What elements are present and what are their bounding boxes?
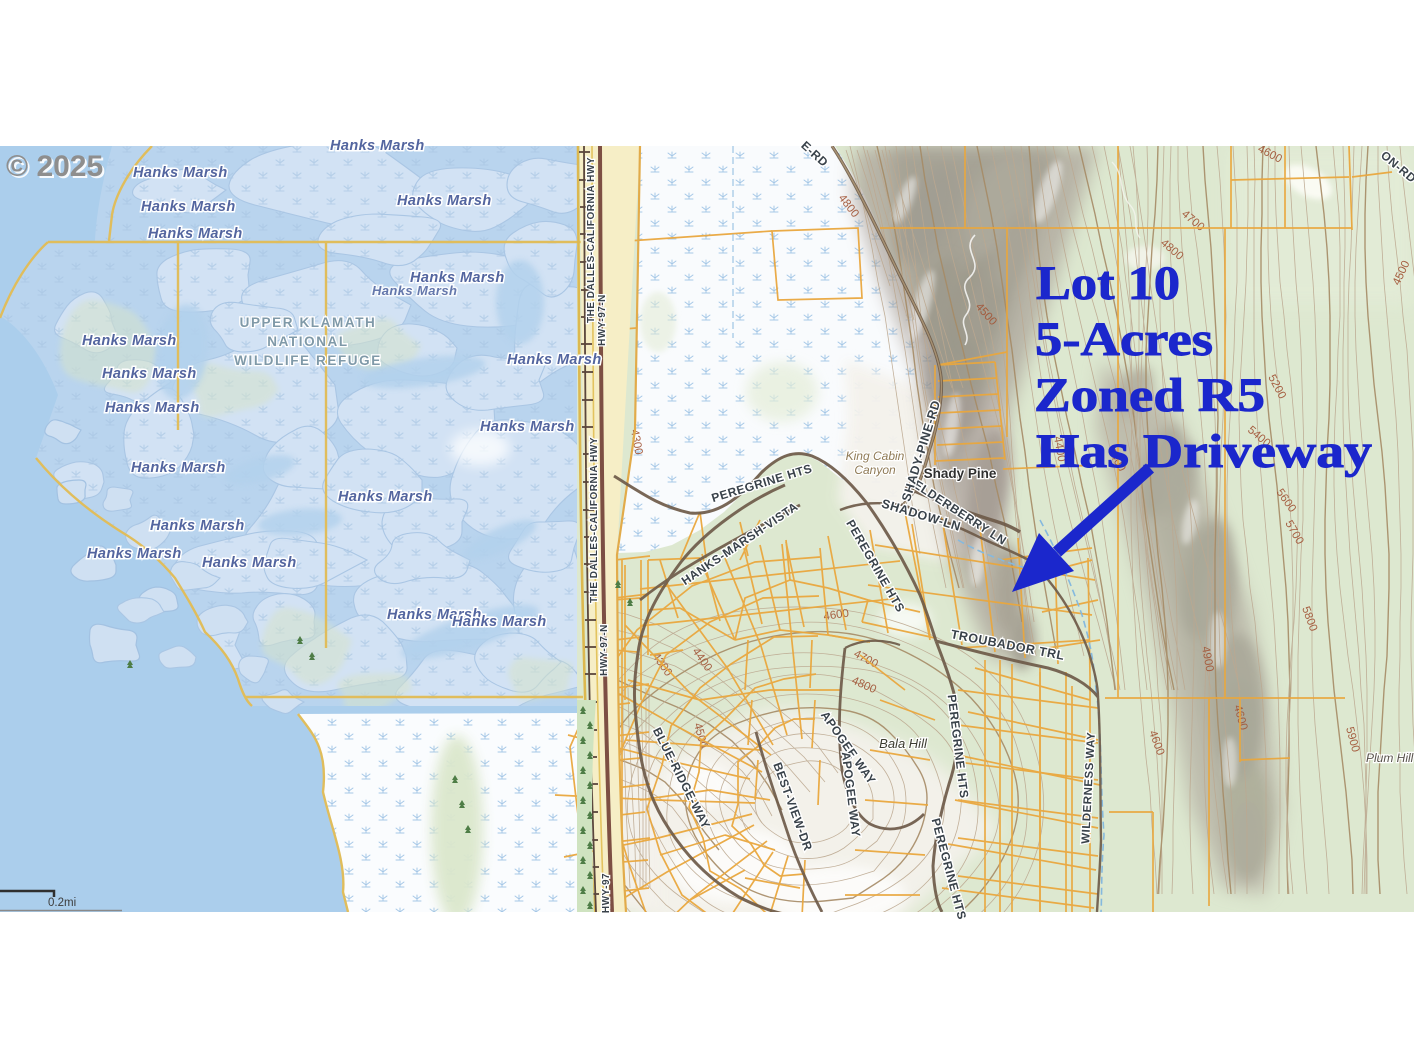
svg-text:Hanks Marsh: Hanks Marsh — [82, 333, 177, 349]
svg-text:Hanks Marsh: Hanks Marsh — [397, 193, 492, 209]
svg-text:King Cabin: King Cabin — [846, 449, 905, 463]
svg-text:Hanks Marsh: Hanks Marsh — [480, 419, 575, 435]
svg-text:Zoned R5: Zoned R5 — [1034, 369, 1265, 422]
svg-text:HWY-97-N: HWY-97-N — [599, 624, 610, 676]
svg-text:Hanks Marsh: Hanks Marsh — [133, 165, 228, 181]
svg-text:HWY-97-N: HWY-97-N — [597, 294, 608, 346]
svg-text:Hanks Marsh: Hanks Marsh — [87, 546, 182, 562]
svg-text:Hanks Marsh: Hanks Marsh — [148, 226, 243, 242]
svg-text:Hanks Marsh: Hanks Marsh — [150, 518, 245, 534]
svg-text:HWY-97: HWY-97 — [601, 873, 612, 913]
svg-text:Hanks Marsh: Hanks Marsh — [105, 400, 200, 416]
svg-text:WILDLIFE REFUGE: WILDLIFE REFUGE — [234, 353, 382, 368]
svg-text:Shady Pine: Shady Pine — [924, 466, 997, 481]
svg-text:Hanks Marsh: Hanks Marsh — [452, 614, 547, 630]
svg-text:Hanks Marsh: Hanks Marsh — [131, 460, 226, 476]
svg-text:Hanks Marsh: Hanks Marsh — [507, 352, 602, 368]
svg-text:Hanks Marsh: Hanks Marsh — [338, 489, 433, 505]
svg-text:NATIONAL: NATIONAL — [267, 334, 349, 349]
svg-text:Plum Hill: Plum Hill — [1366, 751, 1414, 765]
svg-text:5-Acres: 5-Acres — [1035, 313, 1213, 366]
svg-text:Hanks Marsh: Hanks Marsh — [102, 366, 197, 382]
svg-text:Hanks Marsh: Hanks Marsh — [330, 138, 425, 154]
svg-text:Bala Hill: Bala Hill — [879, 736, 928, 751]
svg-text:Canyon: Canyon — [854, 463, 896, 477]
svg-text:UPPER KLAMATH: UPPER KLAMATH — [240, 315, 377, 330]
svg-text:Hanks Marsh: Hanks Marsh — [141, 199, 236, 215]
svg-text:0.2mi: 0.2mi — [48, 897, 76, 909]
svg-text:Lot 10: Lot 10 — [1036, 257, 1180, 310]
svg-text:© 2025: © 2025 — [6, 150, 103, 183]
svg-text:Hanks Marsh: Hanks Marsh — [202, 555, 297, 571]
svg-text:THE DALLES-CALIFORNIA HWY: THE DALLES-CALIFORNIA HWY — [589, 437, 600, 603]
svg-text:THE DALLES-CALIFORNIA HWY: THE DALLES-CALIFORNIA HWY — [586, 157, 597, 323]
svg-text:Hanks Marsh: Hanks Marsh — [372, 283, 457, 298]
svg-text:Has Driveway: Has Driveway — [1036, 425, 1372, 478]
